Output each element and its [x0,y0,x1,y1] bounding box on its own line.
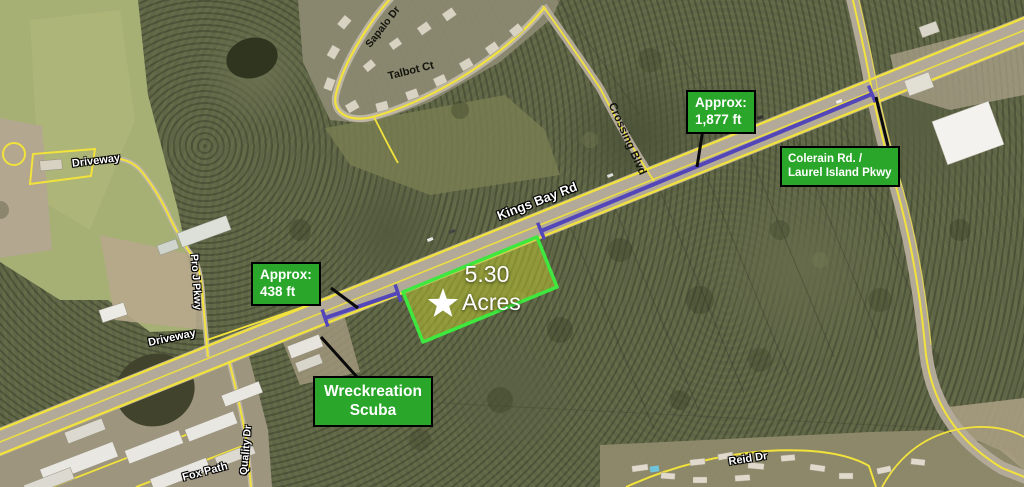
map-graphics [0,0,1024,487]
callout-approx-438: Approx: 438 ft [251,262,321,306]
callout-line: Scuba [324,401,422,420]
callout-line: 438 ft [260,284,312,301]
callout-line: Colerain Rd. / [788,152,892,166]
pond-subdivision [222,32,283,84]
callout-line: Wreckreation [324,382,422,401]
callout-line: Laurel Island Pkwy [788,166,892,180]
parcel-size-unit: Acres [462,289,521,316]
callout-line: Approx: [260,267,312,284]
parcel-size-value: 5.30 [448,261,526,288]
swimming-pool [650,465,660,472]
callout-colerain: Colerain Rd. / Laurel Island Pkwy [780,146,900,187]
callout-wreckreation: Wreckreation Scuba [313,376,433,427]
callout-approx-1877: Approx: 1,877 ft [686,90,756,134]
callout-line: 1,877 ft [695,112,747,129]
aerial-map: 5.30 Acres Kings Bay Rd Crossing Blvd Sa… [0,0,1024,487]
callout-line: Approx: [695,95,747,112]
